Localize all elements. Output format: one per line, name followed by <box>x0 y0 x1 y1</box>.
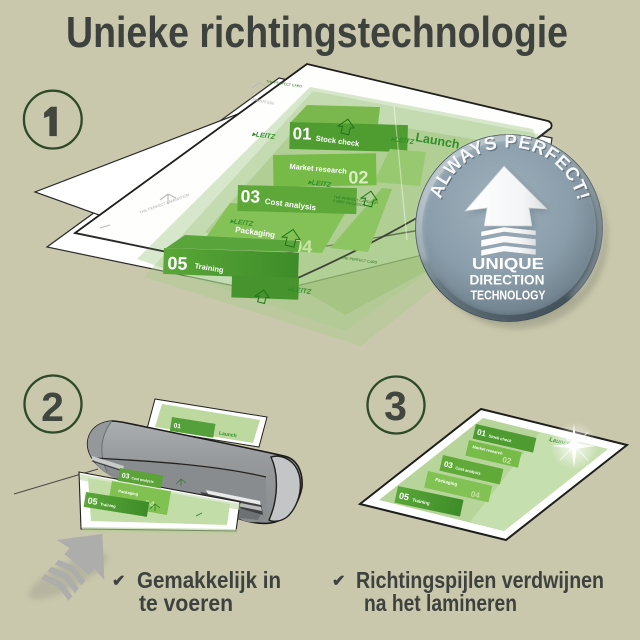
svg-text:2: 2 <box>41 384 64 430</box>
svg-text:05: 05 <box>167 253 188 274</box>
svg-text:TECHNOLOGY: TECHNOLOGY <box>471 288 546 303</box>
svg-text:Unieke richtingstechnologie: Unieke richtingstechnologie <box>66 8 568 57</box>
svg-text:03: 03 <box>121 472 130 480</box>
svg-text:✔: ✔ <box>112 573 125 590</box>
svg-text:3: 3 <box>384 383 407 429</box>
svg-text:05: 05 <box>87 495 98 506</box>
svg-text:03: 03 <box>240 186 260 207</box>
svg-text:te voeren: te voeren <box>139 590 233 616</box>
svg-text:01: 01 <box>292 124 311 143</box>
svg-text:UNIQUE: UNIQUE <box>472 256 544 273</box>
svg-text:DIRECTION: DIRECTION <box>470 272 545 288</box>
svg-text:05: 05 <box>398 491 410 503</box>
svg-text:✔: ✔ <box>332 573 345 590</box>
svg-text:na het lamineren: na het lamineren <box>364 590 517 616</box>
svg-text:02: 02 <box>348 167 368 187</box>
svg-text:01: 01 <box>173 422 182 430</box>
